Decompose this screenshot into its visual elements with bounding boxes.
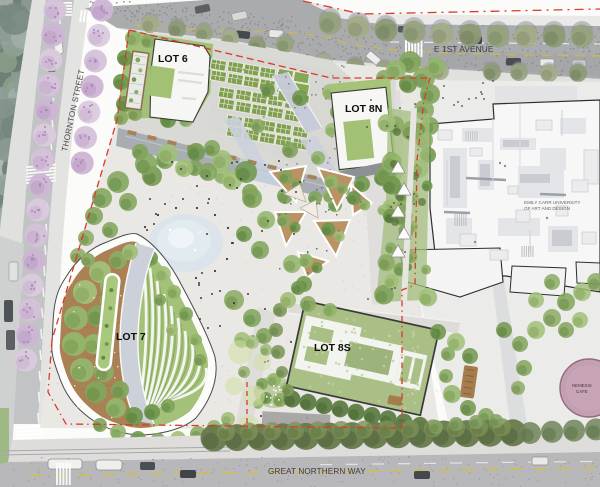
svg-text:LOT 7: LOT 7 (116, 331, 146, 343)
svg-text:E 1ST AVENUE: E 1ST AVENUE (434, 44, 494, 54)
svg-text:LOT 8N: LOT 8N (345, 103, 382, 115)
svg-text:LOT 8S: LOT 8S (314, 342, 351, 354)
svg-text:LOT 6: LOT 6 (158, 53, 188, 65)
svg-text:GREAT NORTHERN WAY: GREAT NORTHERN WAY (268, 467, 366, 476)
svg-text:CAFE: CAFE (576, 389, 588, 394)
svg-text:NEMESIS: NEMESIS (572, 383, 592, 388)
svg-text:OF ART AND DESIGN: OF ART AND DESIGN (524, 206, 570, 211)
svg-text:EMILY CARR UNIVERSITY: EMILY CARR UNIVERSITY (524, 200, 581, 205)
